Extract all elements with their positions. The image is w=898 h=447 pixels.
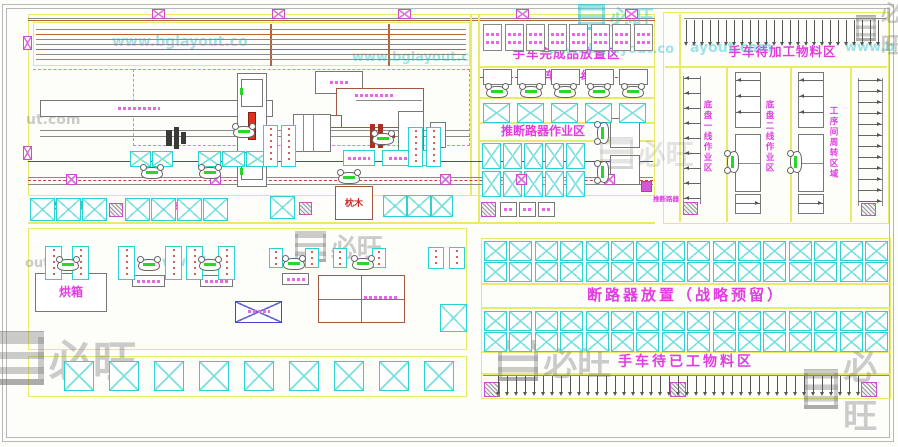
rack-slot bbox=[588, 376, 589, 394]
storage-crate bbox=[424, 361, 454, 391]
shelf-line bbox=[684, 168, 701, 169]
machine-punch-line bbox=[356, 100, 422, 101]
rack-slot bbox=[840, 376, 841, 394]
shelf-line bbox=[799, 112, 823, 113]
rack-slot bbox=[822, 20, 823, 44]
roller-line bbox=[36, 49, 466, 50]
shelf-line bbox=[858, 179, 882, 180]
rack-slot bbox=[854, 20, 855, 44]
pallet-crate bbox=[509, 241, 532, 261]
clamp-marks bbox=[181, 132, 186, 144]
parts-box bbox=[343, 150, 375, 166]
shelf-line bbox=[736, 96, 760, 97]
material-rack bbox=[263, 125, 278, 167]
rack-slot bbox=[696, 376, 697, 394]
zone-label-breaker-small: 推断路器 bbox=[644, 196, 688, 203]
oven-label: 烘箱 bbox=[35, 286, 107, 300]
pallet-crate bbox=[763, 262, 786, 282]
rack-slot bbox=[624, 376, 625, 394]
breaker-crate bbox=[566, 171, 585, 197]
shelf-line bbox=[736, 112, 760, 113]
storage-crate bbox=[199, 361, 229, 391]
rack-slot bbox=[543, 376, 544, 394]
clamp-marks bbox=[166, 130, 172, 146]
roller-line bbox=[36, 34, 466, 35]
storage-crate bbox=[383, 195, 407, 217]
storage-crate bbox=[177, 198, 202, 221]
material-rack bbox=[305, 248, 319, 268]
pallet-crate bbox=[814, 241, 837, 261]
rack-slot bbox=[759, 376, 760, 394]
pallet-crate bbox=[763, 311, 786, 331]
pallet-crate bbox=[738, 241, 761, 261]
pallet-crate bbox=[687, 332, 710, 352]
rack-slot bbox=[750, 20, 751, 44]
breaker-crate bbox=[545, 143, 564, 169]
pallet-crate bbox=[840, 311, 863, 331]
machine-area-dashed-line bbox=[33, 69, 133, 70]
pallet-crate bbox=[840, 332, 863, 352]
quadrant-divider bbox=[319, 299, 404, 300]
rack-cell bbox=[505, 24, 524, 51]
right-col-line bbox=[850, 68, 852, 222]
material-rack bbox=[269, 248, 283, 268]
shelf-line bbox=[684, 108, 701, 109]
pallet-crate bbox=[814, 332, 837, 352]
shelf-line bbox=[684, 78, 701, 79]
rack-slot bbox=[597, 376, 598, 394]
pallet-crate bbox=[865, 262, 888, 282]
pallet-crate bbox=[560, 262, 583, 282]
storage-crate bbox=[431, 195, 453, 217]
pallet-crate bbox=[662, 241, 685, 261]
rack-slot bbox=[678, 376, 679, 394]
storage-crate bbox=[270, 196, 295, 219]
material-rack bbox=[218, 246, 235, 280]
zone-line bbox=[478, 66, 655, 68]
hatch-pallet bbox=[861, 203, 876, 216]
breaker-crate bbox=[482, 171, 501, 197]
pallet-crate bbox=[687, 311, 710, 331]
material-rack bbox=[428, 247, 444, 269]
rack-slot bbox=[777, 376, 778, 394]
storage-crate bbox=[222, 151, 245, 167]
pallet-crate bbox=[535, 241, 558, 261]
pallet-crate bbox=[662, 311, 685, 331]
right-col-line bbox=[726, 68, 728, 222]
shelf-line bbox=[799, 80, 823, 81]
column-marker bbox=[23, 146, 32, 160]
pallet-crate bbox=[611, 311, 634, 331]
storage-crate bbox=[440, 304, 467, 332]
rack-slot bbox=[734, 20, 735, 44]
shelf-line bbox=[736, 203, 760, 204]
pallet-crate bbox=[560, 332, 583, 352]
material-rack bbox=[449, 247, 465, 269]
shelf-line bbox=[684, 153, 701, 154]
storage-crate bbox=[30, 198, 55, 221]
breaker-crate bbox=[482, 143, 501, 169]
hatch-pallet bbox=[299, 202, 312, 215]
rack-slot bbox=[615, 376, 616, 394]
pallet-crate bbox=[611, 332, 634, 352]
corridor-line bbox=[470, 14, 472, 196]
operator-seat-icon bbox=[233, 126, 255, 138]
pallet-crate bbox=[840, 241, 863, 261]
rack-cell bbox=[569, 24, 588, 51]
shelf-line bbox=[858, 146, 882, 147]
zone-label-chassis-line2: 底盘二线作业区 bbox=[763, 100, 775, 200]
shelf-line bbox=[858, 157, 882, 158]
breaker-crate bbox=[585, 103, 612, 123]
pallet-crate bbox=[535, 332, 558, 352]
material-rack bbox=[118, 246, 135, 280]
pallet-crate bbox=[789, 332, 812, 352]
micro-label bbox=[118, 107, 160, 110]
pallet-crate bbox=[814, 311, 837, 331]
rack-cell bbox=[612, 24, 631, 51]
rack-slot bbox=[718, 20, 719, 44]
rack-slot bbox=[795, 376, 796, 394]
rack-slot bbox=[838, 20, 839, 44]
pallet-crate bbox=[484, 311, 507, 331]
material-rack bbox=[333, 248, 347, 268]
rack-slot bbox=[878, 20, 879, 44]
sleeper-label: 枕木 bbox=[335, 196, 373, 209]
rack-slot bbox=[750, 376, 751, 394]
wall-line-red bbox=[28, 20, 655, 21]
material-rack bbox=[408, 127, 423, 167]
pallet-crate bbox=[865, 332, 888, 352]
rack-slot bbox=[694, 20, 695, 44]
shelf-line bbox=[858, 102, 882, 103]
storage-crate bbox=[109, 361, 139, 391]
breaker-crate bbox=[483, 103, 510, 123]
machine-press-upper bbox=[241, 79, 263, 107]
pallet-crate bbox=[865, 311, 888, 331]
shelf-line bbox=[684, 123, 701, 124]
operator-seat-icon bbox=[57, 259, 79, 271]
zone-label-process-transfer: 工序间周转区域 bbox=[827, 106, 839, 206]
roller-line bbox=[36, 44, 466, 45]
rack-slot bbox=[814, 20, 815, 44]
column-marker bbox=[625, 9, 638, 19]
pallet-crate bbox=[535, 311, 558, 331]
breaker-crate bbox=[551, 103, 578, 123]
pallet-crate bbox=[738, 262, 761, 282]
rack-slot bbox=[669, 376, 670, 394]
shelf-line bbox=[684, 138, 701, 139]
pallet-crate bbox=[814, 262, 837, 282]
operator-seat-icon bbox=[372, 133, 394, 145]
micro-label bbox=[248, 310, 270, 313]
rack-slot bbox=[534, 376, 535, 394]
rack-slot bbox=[858, 376, 859, 394]
right-zone-line bbox=[665, 66, 887, 68]
operator-seat-icon bbox=[520, 86, 542, 98]
storage-crate bbox=[289, 361, 319, 391]
column-marker bbox=[516, 9, 529, 19]
rack-slot bbox=[714, 376, 715, 394]
operator-seat-icon bbox=[486, 86, 508, 98]
machine-detail-line bbox=[303, 114, 304, 152]
rack-slot bbox=[782, 20, 783, 44]
pallet-crate bbox=[509, 262, 532, 282]
rack-slot bbox=[516, 376, 517, 394]
column-marker bbox=[516, 174, 527, 185]
column-marker bbox=[23, 36, 32, 50]
pallet-crate bbox=[662, 262, 685, 282]
pallet-crate bbox=[636, 332, 659, 352]
rack-slot bbox=[806, 20, 807, 44]
shelf-line bbox=[858, 113, 882, 114]
rack-slot bbox=[633, 376, 634, 394]
pallet-crate bbox=[636, 311, 659, 331]
pallet-crate bbox=[789, 262, 812, 282]
rack-slot bbox=[579, 376, 580, 394]
rack-slot bbox=[831, 376, 832, 394]
operator-seat-icon bbox=[597, 122, 609, 144]
storage-crate bbox=[407, 195, 431, 217]
shelf-line bbox=[799, 203, 823, 204]
rack-slot bbox=[660, 376, 661, 394]
rack-slot bbox=[498, 376, 499, 394]
column-marker bbox=[152, 9, 165, 19]
pallet-crate bbox=[713, 241, 736, 261]
roller-line bbox=[36, 39, 466, 40]
rack-slot bbox=[813, 376, 814, 394]
work-bench bbox=[132, 275, 165, 287]
pallet-crate bbox=[789, 241, 812, 261]
pallet-crate bbox=[738, 311, 761, 331]
pallet-crate bbox=[535, 262, 558, 282]
shelf-line bbox=[736, 80, 760, 81]
breaker-crate bbox=[545, 171, 564, 197]
storage-crate bbox=[56, 198, 81, 221]
pallet-crate bbox=[789, 311, 812, 331]
rack-rail bbox=[858, 78, 859, 206]
machine-punch-foot bbox=[330, 115, 342, 128]
shelf-line bbox=[684, 93, 701, 94]
pallet-crate bbox=[586, 241, 609, 261]
indicator-green bbox=[240, 88, 243, 95]
rack-slot bbox=[552, 376, 553, 394]
pallet-crate bbox=[586, 262, 609, 282]
storage-crate bbox=[82, 198, 107, 221]
rack-slot bbox=[790, 20, 791, 44]
pallet-crate bbox=[586, 311, 609, 331]
pallet-crate bbox=[636, 262, 659, 282]
breaker-crate bbox=[566, 143, 585, 169]
material-rack bbox=[281, 125, 296, 167]
rack-slot bbox=[726, 20, 727, 44]
rack-slot bbox=[732, 376, 733, 394]
right-comb-rail bbox=[684, 18, 886, 19]
pallet-crate bbox=[713, 332, 736, 352]
clamp-marks bbox=[174, 127, 179, 149]
rack-slot bbox=[570, 376, 571, 394]
operator-seat-icon bbox=[597, 161, 609, 183]
rack-slot bbox=[798, 20, 799, 44]
work-bench bbox=[282, 273, 309, 285]
zone-label-breaker-reserve: 断路器放置（战略预留） bbox=[481, 287, 891, 304]
strip-bottom-line bbox=[28, 222, 655, 224]
wall-line bbox=[28, 18, 655, 19]
rack-slot bbox=[870, 20, 871, 44]
operator-seat-icon bbox=[727, 151, 739, 173]
rack-slot bbox=[849, 376, 850, 394]
rack-slot bbox=[774, 20, 775, 44]
small-bench bbox=[519, 202, 536, 217]
right-col-line bbox=[790, 68, 792, 222]
chassis-machine-line bbox=[736, 163, 760, 164]
machine-station bbox=[293, 114, 331, 152]
breaker-crate bbox=[619, 103, 646, 123]
operator-seat-icon bbox=[141, 167, 163, 179]
rack-cell bbox=[634, 24, 653, 51]
chassis-machine-line bbox=[799, 163, 823, 164]
pallet-crate bbox=[713, 262, 736, 282]
breaker-crate bbox=[517, 103, 544, 123]
storage-crate bbox=[244, 361, 274, 391]
storage-crate bbox=[203, 198, 228, 221]
pallet-crate bbox=[840, 262, 863, 282]
pallet-crate bbox=[687, 262, 710, 282]
rack-slot bbox=[742, 20, 743, 44]
rack-slot bbox=[642, 376, 643, 394]
micro-label bbox=[364, 296, 398, 299]
shelf-line bbox=[858, 80, 882, 81]
column-marker bbox=[398, 9, 411, 19]
rack-slot bbox=[741, 376, 742, 394]
rack-slot bbox=[758, 20, 759, 44]
rack-slot bbox=[786, 376, 787, 394]
pallet-crate bbox=[560, 311, 583, 331]
operator-seat-icon bbox=[588, 86, 610, 98]
rack-slot bbox=[804, 376, 805, 394]
rack-slot bbox=[561, 376, 562, 394]
rack-rail bbox=[683, 76, 684, 204]
shelf-line bbox=[858, 124, 882, 125]
shelf-line bbox=[858, 168, 882, 169]
storage-crate bbox=[334, 361, 364, 391]
pallet-crate bbox=[636, 241, 659, 261]
pallet-crate bbox=[509, 332, 532, 352]
shelf-line bbox=[858, 190, 882, 191]
pallet-crate bbox=[484, 262, 507, 282]
machine-detail-line bbox=[313, 114, 314, 152]
storage-crate bbox=[379, 361, 409, 391]
column-marker bbox=[66, 174, 77, 185]
factory-layout-canvas: 枕木 烘箱 手车完成品放置区 手车装机线 推断路器作业区 推断路器 手车待加工物… bbox=[0, 0, 898, 447]
operator-seat-icon bbox=[554, 86, 576, 98]
operator-seat-icon bbox=[622, 86, 644, 98]
rack-cell bbox=[591, 24, 610, 51]
pallet-crate bbox=[687, 241, 710, 261]
pallet-crate bbox=[738, 332, 761, 352]
storage-crate bbox=[125, 198, 150, 221]
operator-seat-icon bbox=[283, 258, 305, 270]
hatch-pallet bbox=[683, 202, 698, 215]
rack-slot bbox=[702, 20, 703, 44]
rack-slot bbox=[507, 376, 508, 394]
pallet-crate bbox=[560, 241, 583, 261]
operator-seat-icon bbox=[138, 259, 160, 271]
corridor-line bbox=[478, 14, 480, 222]
shelf-line bbox=[858, 135, 882, 136]
pallet-crate bbox=[509, 311, 532, 331]
rack-cell bbox=[548, 24, 567, 51]
rack-slot bbox=[846, 20, 847, 44]
roller-line bbox=[36, 29, 466, 30]
pallet-crate bbox=[865, 241, 888, 261]
hatch-pallet bbox=[481, 202, 496, 217]
pallet-crate bbox=[662, 332, 685, 352]
small-bench bbox=[538, 202, 555, 217]
zone-label-chassis-line1: 底盘一线作业区 bbox=[701, 100, 713, 200]
hatch-pallet bbox=[109, 203, 123, 217]
rack-slot bbox=[862, 20, 863, 44]
shelf-line bbox=[858, 201, 882, 202]
pallet-crate bbox=[763, 241, 786, 261]
pallet-crate bbox=[611, 241, 634, 261]
operator-seat-icon bbox=[352, 258, 374, 270]
rack-slot bbox=[723, 376, 724, 394]
rack-slot bbox=[606, 376, 607, 394]
pallet-crate bbox=[763, 332, 786, 352]
zone-label-breaker-area: 推断路器作业区 bbox=[478, 125, 608, 139]
operator-seat-icon bbox=[338, 172, 360, 184]
breaker-crate bbox=[503, 143, 522, 169]
shelf-line bbox=[684, 198, 701, 199]
micro-label bbox=[355, 94, 395, 97]
rack-cell bbox=[483, 24, 502, 51]
storage-crate bbox=[151, 198, 176, 221]
material-rack bbox=[426, 127, 441, 167]
operator-seat-icon bbox=[790, 151, 802, 173]
rack-slot bbox=[766, 20, 767, 44]
column-marker bbox=[272, 9, 285, 19]
rack-slot bbox=[651, 376, 652, 394]
zone-label-processed-material: 手车待已工物料区 bbox=[481, 354, 891, 370]
material-rack bbox=[165, 246, 182, 280]
pallet-crate bbox=[713, 311, 736, 331]
rack-cell bbox=[526, 24, 545, 51]
indicator-green bbox=[240, 168, 243, 175]
line-end-marker bbox=[641, 181, 652, 192]
rack-slot bbox=[710, 20, 711, 44]
roller-line bbox=[36, 59, 466, 60]
shelf-line bbox=[858, 91, 882, 92]
shelf-line bbox=[684, 183, 701, 184]
rack-slot bbox=[525, 376, 526, 394]
shelf-line bbox=[799, 96, 823, 97]
breaker-crate bbox=[524, 143, 543, 169]
roller-line bbox=[36, 54, 466, 55]
operator-seat-icon bbox=[199, 259, 221, 271]
pallet-crate bbox=[586, 332, 609, 352]
hatch-pallet bbox=[861, 382, 877, 397]
pallet-crate bbox=[484, 241, 507, 261]
rack-slot bbox=[830, 20, 831, 44]
rack-slot bbox=[822, 376, 823, 394]
rack-slot bbox=[686, 20, 687, 44]
rack-slot bbox=[705, 376, 706, 394]
pallet-crate bbox=[611, 262, 634, 282]
pallet-crate bbox=[484, 332, 507, 352]
rack-slot bbox=[768, 376, 769, 394]
micro-label bbox=[330, 81, 350, 84]
